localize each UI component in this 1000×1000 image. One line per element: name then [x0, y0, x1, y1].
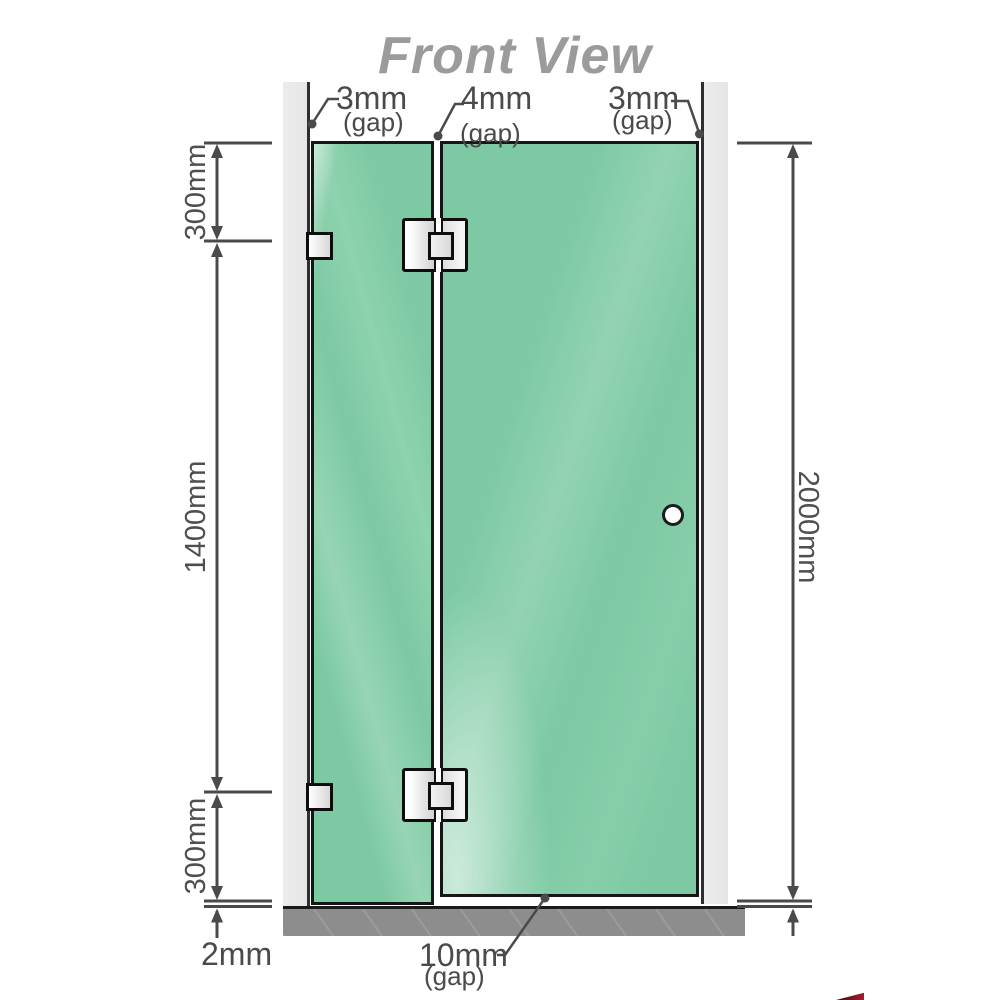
dimension-top-300mm: 300mm [181, 132, 211, 252]
gap-top-middle-value: 4mm [461, 80, 532, 117]
dimension-lines-layer [0, 0, 1000, 1000]
floor-gap-2mm-label: 2mm [201, 936, 272, 973]
gap-bottom-door-qualifier: (gap) [424, 961, 485, 992]
gap-top-middle-qualifier: (gap) [460, 118, 521, 149]
dimension-total-2000mm: 2000mm [793, 452, 823, 602]
gap-top-left-qualifier: (gap) [343, 107, 404, 138]
gap-leader-lines [312, 99, 700, 955]
gap-top-right-qualifier: (gap) [612, 105, 673, 136]
dimension-middle-1400mm: 1400mm [181, 442, 211, 592]
front-view-diagram: Front View [0, 0, 1000, 1000]
left-dimension-chain [204, 143, 272, 938]
gap-leader-dots [308, 120, 705, 903]
dimension-bottom-300mm: 300mm [181, 786, 211, 906]
